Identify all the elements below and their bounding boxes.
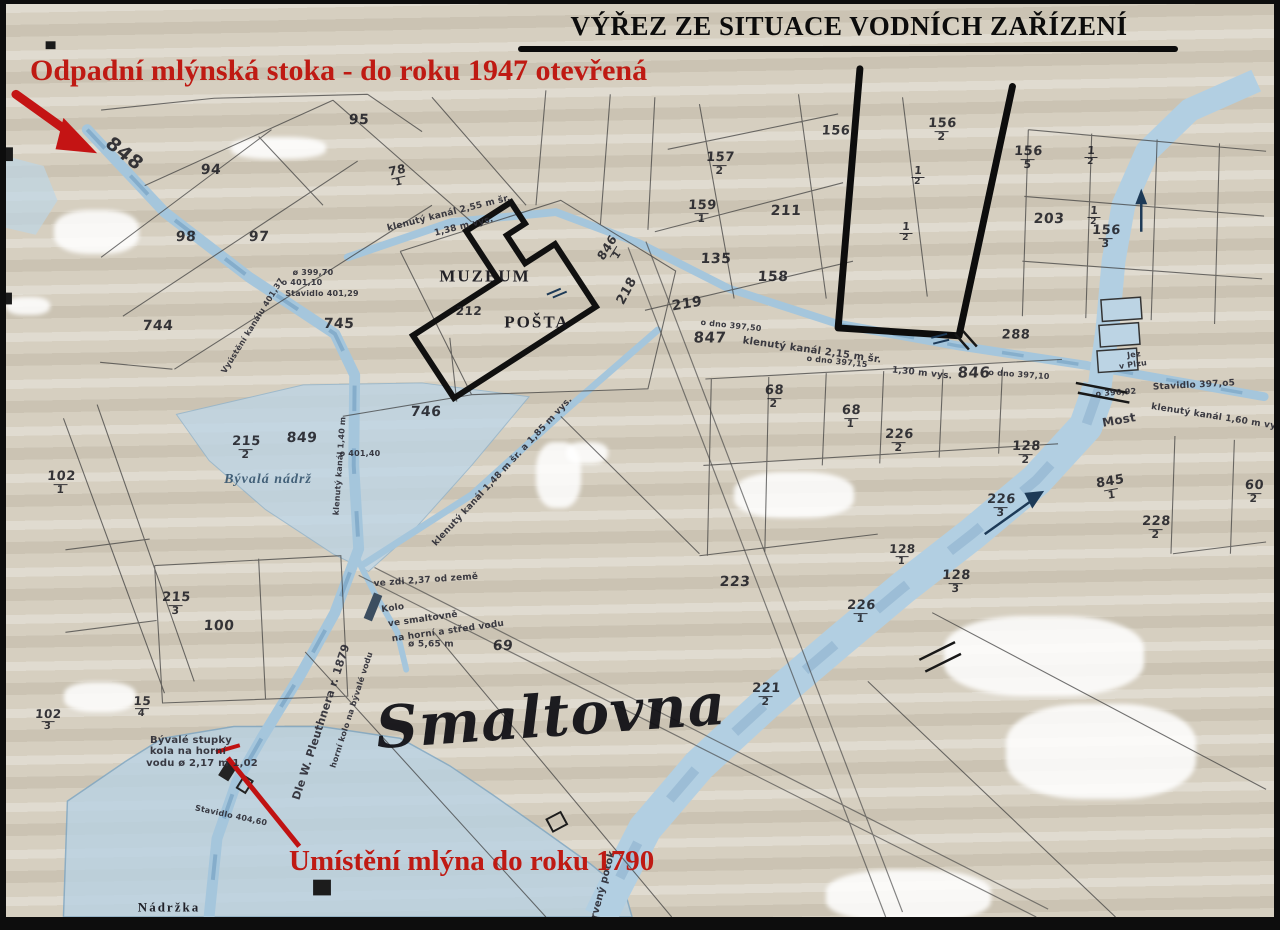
muzeum-building-outline bbox=[381, 195, 596, 398]
weir-blocks bbox=[1097, 297, 1142, 372]
map-graphics bbox=[6, 4, 1274, 917]
page-title: VÝŘEZ ZE SITUACE VODNÍCH ZAŘÍZENÍ bbox=[518, 11, 1180, 42]
highlight-marker-lines bbox=[838, 69, 1012, 336]
red-arrow bbox=[16, 94, 97, 153]
scan-border-frame: 8489495781989774474574684921521021215310… bbox=[0, 0, 1280, 930]
small-pond-area bbox=[6, 156, 58, 235]
annotation-mill-location: Umístění mlýna do roku 1790 bbox=[289, 845, 654, 878]
water-layer bbox=[6, 81, 1264, 917]
title-underline bbox=[518, 46, 1178, 52]
river-lower bbox=[600, 387, 1099, 917]
map-canvas: 8489495781989774474574684921521021215310… bbox=[6, 4, 1274, 917]
annotation-open-sewer: Odpadní mlýnská stoka - do roku 1947 ote… bbox=[30, 54, 647, 88]
